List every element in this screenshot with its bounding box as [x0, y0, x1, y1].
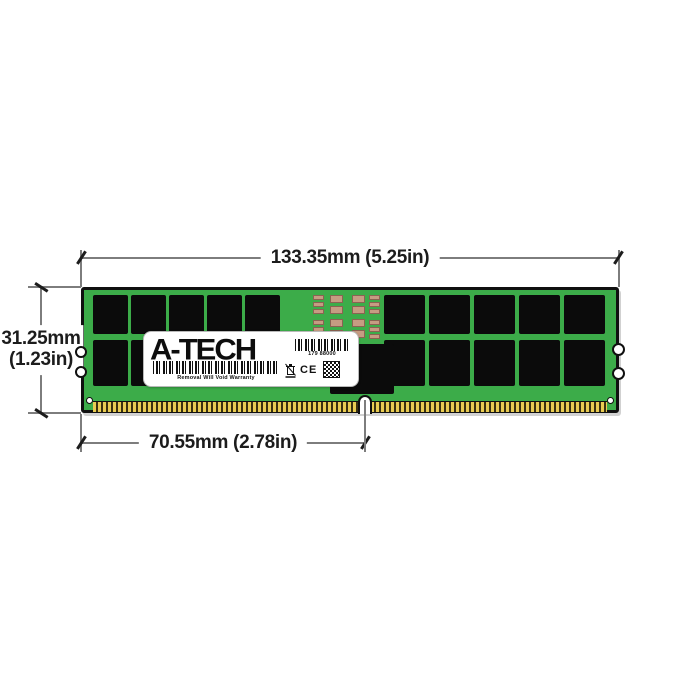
smd-component: [369, 302, 380, 307]
warranty-barcode-icon: [153, 361, 279, 374]
warranty-text: Removal Will Void Warranty: [153, 375, 279, 381]
smd-component: [369, 334, 380, 339]
smd-component: [369, 327, 380, 332]
memory-chip: [207, 295, 242, 334]
extension-line: [364, 400, 366, 452]
pin-span-dimension-label: 70.55mm (2.78in): [139, 431, 307, 455]
smd-component: [330, 306, 343, 314]
side-notch-right: [612, 367, 625, 380]
extension-line: [28, 412, 81, 414]
memory-chip: [93, 340, 128, 386]
memory-chip: [169, 295, 204, 334]
extension-line: [80, 414, 82, 452]
height-dimension-label: 31.25mm (1.23in): [0, 325, 84, 375]
side-notch-left: [75, 366, 87, 378]
memory-chip: [474, 295, 515, 334]
part-number: 179 88000: [295, 351, 349, 357]
smd-component: [369, 309, 380, 314]
memory-chip: [131, 295, 166, 334]
smd-component: [313, 320, 324, 325]
smd-component: [313, 309, 324, 314]
mounting-hole-left: [86, 397, 93, 404]
side-notch-right: [612, 343, 625, 356]
product-label: A-TECH 179 88000 Removal Will Void Warra…: [143, 331, 359, 387]
memory-chip: [384, 295, 425, 334]
width-dimension-label: 133.35mm (5.25in): [261, 246, 440, 270]
smd-component: [369, 320, 380, 325]
memory-chip: [245, 295, 280, 334]
weee-bin-icon: [284, 362, 297, 378]
memory-chip: [519, 295, 560, 334]
memory-chip: [564, 295, 605, 334]
smd-component: [313, 302, 324, 307]
smd-component: [369, 295, 380, 300]
smd-component: [352, 295, 365, 303]
memory-chip: [429, 340, 470, 386]
memory-chip: [519, 340, 560, 386]
side-notch-left: [75, 346, 87, 358]
gold-pins-right: [371, 401, 607, 412]
height-label-line1: 31.25mm: [1, 329, 80, 350]
memory-chip: [429, 295, 470, 334]
extension-line: [28, 286, 81, 288]
qr-code-icon: [323, 361, 340, 378]
smd-component: [330, 319, 343, 327]
serial-barcode-icon: [295, 339, 349, 351]
smd-component: [330, 295, 343, 303]
smd-component: [352, 306, 365, 314]
ce-mark: CE: [300, 364, 317, 376]
smd-component: [352, 319, 365, 327]
memory-chip: [564, 340, 605, 386]
mounting-hole-right: [607, 397, 614, 404]
height-label-line2: (1.23in): [1, 350, 80, 371]
memory-chip: [93, 295, 128, 334]
smd-component: [313, 295, 324, 300]
memory-chip: [474, 340, 515, 386]
gold-pins-left: [93, 401, 359, 412]
product-dimension-diagram: 133.35mm (5.25in) 31.25mm (1.23in) 70.55…: [0, 0, 700, 700]
